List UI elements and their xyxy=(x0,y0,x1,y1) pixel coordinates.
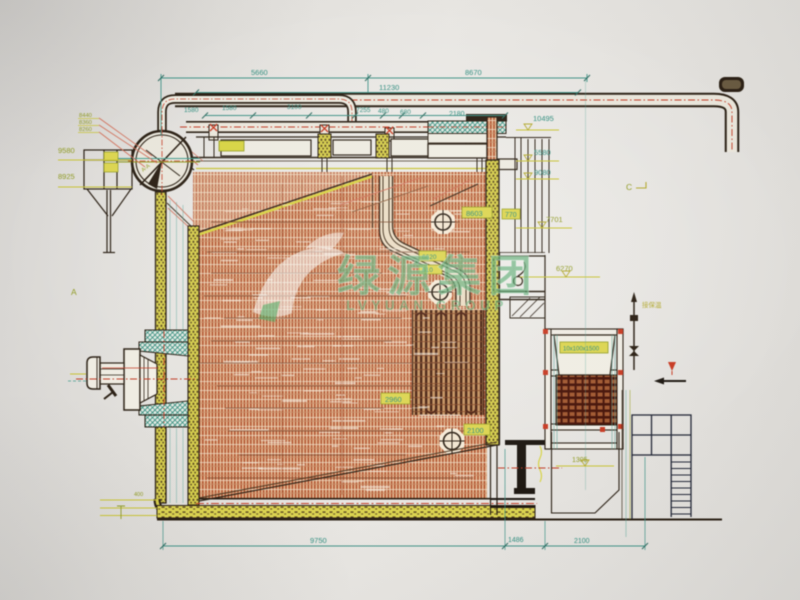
svg-text:9750: 9750 xyxy=(310,536,327,545)
svg-text:1580: 1580 xyxy=(184,107,199,114)
svg-text:2100: 2100 xyxy=(574,538,590,545)
svg-text:LVYUAN GROUP: LVYUAN GROUP xyxy=(346,298,508,313)
svg-text:C: C xyxy=(626,182,632,192)
svg-text:2180: 2180 xyxy=(449,111,465,118)
svg-text:9580: 9580 xyxy=(58,146,75,155)
svg-text:9080: 9080 xyxy=(534,168,551,177)
svg-text:8670: 8670 xyxy=(465,68,482,77)
svg-text:5660: 5660 xyxy=(251,68,268,77)
svg-text:11230: 11230 xyxy=(379,83,399,92)
svg-text:8925: 8925 xyxy=(58,172,75,181)
svg-text:1305: 1305 xyxy=(572,457,588,464)
svg-text:2100: 2100 xyxy=(467,426,484,435)
svg-text:7701: 7701 xyxy=(546,215,563,224)
svg-text:5580: 5580 xyxy=(534,148,551,157)
svg-text:接保温: 接保温 xyxy=(642,300,662,309)
svg-text:480: 480 xyxy=(378,108,389,115)
svg-text:770: 770 xyxy=(505,212,517,219)
svg-text:10495: 10495 xyxy=(533,114,554,123)
svg-text:7255: 7255 xyxy=(356,107,371,114)
svg-text:3100: 3100 xyxy=(287,104,302,111)
svg-text:680: 680 xyxy=(400,109,411,116)
svg-text:1486: 1486 xyxy=(508,537,524,544)
svg-text:10x100x1500: 10x100x1500 xyxy=(563,347,600,353)
svg-text:1580: 1580 xyxy=(222,105,237,112)
svg-text:6270: 6270 xyxy=(556,264,573,273)
svg-text:A: A xyxy=(71,287,77,297)
svg-text:400: 400 xyxy=(134,492,143,498)
svg-text:8603: 8603 xyxy=(466,209,483,218)
svg-text:绿源集团: 绿源集团 xyxy=(337,253,539,301)
svg-text:2960: 2960 xyxy=(385,395,402,404)
